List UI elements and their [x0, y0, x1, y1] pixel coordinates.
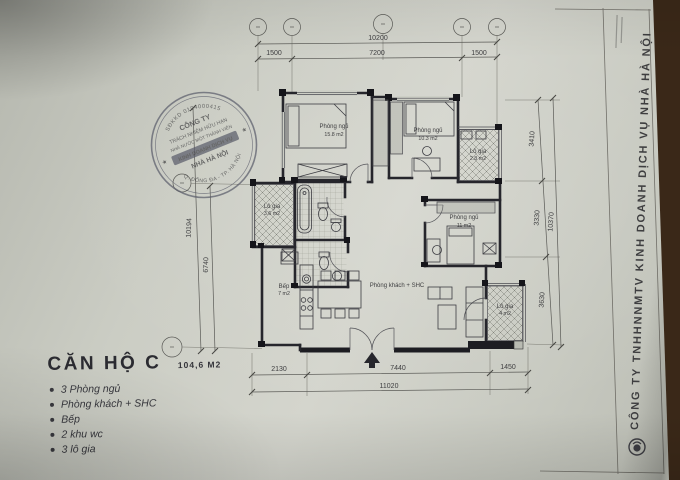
dim-top-3: 1500: [471, 50, 487, 57]
bed-bedroom3: [447, 226, 474, 264]
feature-text: 2 khu wc: [61, 428, 103, 441]
bullet-icon: [50, 433, 54, 437]
apartment-area: 104,6 M2: [178, 359, 222, 370]
label-bedroom1-area: 15.8 m2: [324, 132, 343, 138]
shaft-unit-bedroom3: [483, 243, 496, 254]
bullet-icon: [50, 418, 54, 422]
feature-text: 3 lô gia: [62, 443, 96, 455]
desk-bedroom3: [427, 239, 442, 262]
wc2-floor: [297, 242, 347, 286]
company-name-vertical: CÔNG TY TNHHNNMTV KINH DOANH DỊCH VỤ NHÀ…: [628, 32, 653, 430]
loggia-top-right-area: [460, 130, 499, 181]
dim-top-1: 1500: [266, 50, 282, 57]
bottom-right-wall: [468, 341, 518, 349]
feature-list: 3 Phòng ngủ Phòng khách + SHC Bếp 2 khu …: [50, 379, 319, 457]
dim-right-2: 3330: [533, 210, 541, 226]
label-kitchen-area: 7 m2: [278, 291, 290, 297]
shaft-kitchen: [282, 249, 295, 261]
label-loggia-left: Lô gia: [264, 204, 281, 210]
company-stamp: SĐKKD 0104000415 Q. ĐỐNG ĐA - TP. HÀ NỘI…: [136, 77, 273, 214]
doors: [327, 158, 486, 350]
stamp-star-left: ★: [161, 158, 169, 167]
label-living-room: Phòng khách + SHC: [370, 283, 425, 289]
label-loggia-top-right: Lô gia: [470, 149, 487, 155]
fine-print: [615, 15, 622, 48]
label-loggia-bottom-right-area: 4 m2: [499, 311, 511, 317]
bullet-icon: [50, 403, 54, 407]
company-logo-icon: [629, 439, 645, 455]
dim-right-1: 3410: [528, 131, 536, 147]
dim-left-outer: 10194: [186, 218, 194, 238]
label-loggia-top-right-area: 2.8 m2: [470, 156, 486, 162]
dim-top-overall: 10200: [368, 35, 388, 42]
photo-background: 10200 1500 7200 1500 2130 7440 1450 1102…: [0, 0, 680, 480]
dim-top-2: 7200: [369, 50, 385, 57]
dresser-bedroom1: [298, 164, 347, 177]
company-sidebar: CÔNG TY TNHHNNMTV KINH DOANH DỊCH VỤ NHÀ…: [615, 15, 653, 455]
label-loggia-left-area: 3.6 m2: [264, 211, 280, 217]
grid-bubbles-left: [162, 174, 191, 357]
bullet-icon: [51, 447, 55, 451]
title-block: CĂN HỘ C 104,6 M2 3 Phòng ngủ Phòng khác…: [47, 350, 318, 457]
sofa-set: [428, 287, 483, 337]
dim-right-3: 3630: [538, 292, 546, 308]
feature-text: 3 Phòng ngủ: [61, 383, 121, 396]
label-bedroom2-area: 10.3 m2: [418, 136, 437, 142]
wardrobe-bedroom2: [391, 102, 403, 154]
label-kitchen: Bếp: [279, 284, 290, 290]
feature-text: Phòng khách + SHC: [61, 398, 157, 411]
entry-arrow-icon: [364, 352, 380, 368]
dim-left-inner: 6740: [203, 257, 211, 273]
grid-bubbles-top: [250, 15, 506, 36]
label-bedroom3-area: 11 m2: [457, 223, 471, 229]
bullet-icon: [50, 388, 54, 392]
apartment-name: CĂN HỘ C: [47, 352, 161, 375]
dim-bottom-3: 1450: [500, 364, 516, 371]
label-bedroom1: Phòng ngủ: [319, 123, 348, 130]
stamp-star-right: ★: [241, 126, 249, 135]
label-bedroom2: Phòng ngủ: [413, 127, 442, 134]
paper-sheet: 10200 1500 7200 1500 2130 7440 1450 1102…: [0, 0, 680, 480]
dim-right-overall: 10370: [547, 212, 555, 232]
wardrobe-bedroom3: [437, 202, 495, 213]
dim-bottom-2: 7440: [390, 365, 406, 372]
label-bedroom3: Phòng ngủ: [449, 214, 478, 221]
label-loggia-bottom-right: Lô gia: [497, 304, 514, 310]
feature-text: Bếp: [61, 413, 80, 425]
dim-bottom-overall: 11020: [380, 383, 399, 390]
wardrobe-hall: [373, 100, 388, 166]
